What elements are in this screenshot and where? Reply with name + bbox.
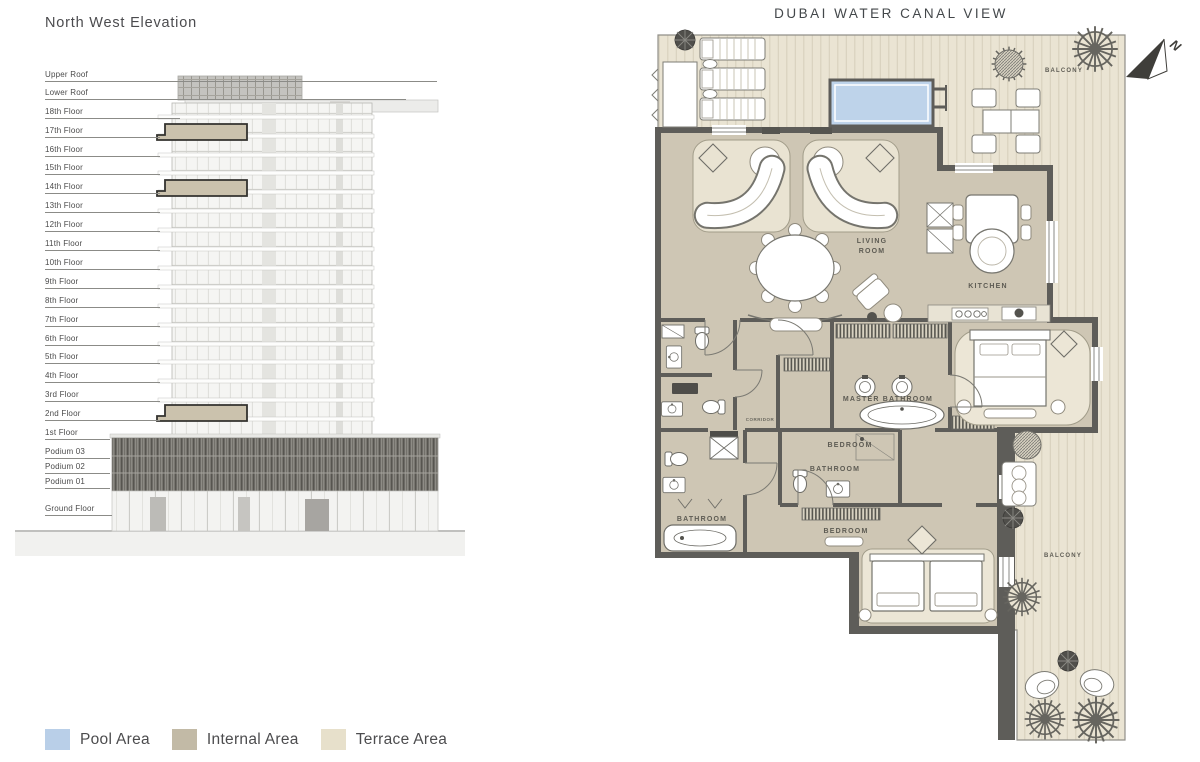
sun-lounger — [700, 98, 765, 120]
legend-item-internal-area: Internal Area — [172, 729, 299, 750]
floor-label-8th-floor: 8th Floor — [45, 296, 160, 308]
floor-label-1st-floor: 1st Floor — [45, 428, 110, 440]
legend-swatch — [172, 729, 197, 750]
pillow — [1012, 344, 1040, 355]
door-tag-2 — [810, 127, 832, 134]
side-table-dark — [867, 312, 877, 322]
toilet — [703, 400, 726, 414]
room-label-master-bathroom: MASTER BATHROOM — [843, 396, 933, 403]
sink — [666, 346, 681, 368]
door-tag-1 — [762, 127, 780, 134]
faucet — [1015, 309, 1024, 318]
ground-texture — [15, 532, 465, 556]
plant-icon — [1003, 578, 1041, 616]
shaft-box — [672, 383, 698, 394]
ground-entrance — [305, 499, 329, 531]
floor-label-11th-floor: 11th Floor — [45, 239, 160, 251]
floor-label-15th-floor: 15th Floor — [45, 163, 160, 175]
floor-label-6th-floor: 6th Floor — [45, 334, 160, 346]
floor-label-5th-floor: 5th Floor — [45, 352, 160, 364]
room-label-bathroom-middle: BATHROOM — [810, 466, 860, 473]
legend-label: Pool Area — [80, 731, 150, 749]
room-label-balcony-right: BALCONY — [1044, 553, 1082, 559]
floor-label-ground-floor: Ground Floor — [45, 504, 112, 516]
legend-item-pool-area: Pool Area — [45, 729, 150, 750]
floor-label-13th-floor: 13th Floor — [45, 201, 160, 213]
basin — [892, 377, 912, 397]
room-label-living-2: ROOM — [859, 248, 886, 255]
plant-icon — [1025, 699, 1066, 740]
north-arrow: N — [1126, 37, 1184, 79]
pillow — [935, 593, 977, 606]
legend-label: Internal Area — [207, 731, 299, 749]
room-label-kitchen: KITCHEN — [968, 283, 1008, 290]
round-planter — [995, 50, 1023, 78]
pillow — [980, 344, 1008, 355]
toilet — [793, 470, 807, 493]
headboard — [870, 554, 984, 561]
floor-label-17th-floor: 17th Floor — [45, 126, 160, 138]
floor-label-16th-floor: 16th Floor — [45, 145, 160, 157]
pool — [830, 80, 947, 126]
room-label-bedroom-lower: BEDROOM — [824, 528, 869, 535]
ground-door-1 — [150, 497, 166, 531]
floor-label-18th-floor: 18th Floor — [45, 107, 180, 119]
north-label: N — [1167, 37, 1184, 55]
floorplan-drawing: LIVING ROOM KITCHEN MASTER BATHROOM BEDR… — [650, 25, 1190, 745]
legend-swatch — [321, 729, 346, 750]
sun-lounger — [700, 68, 765, 90]
basin — [855, 377, 875, 397]
bathtub — [860, 401, 944, 429]
room-label-balcony-top: BALCONY — [1045, 68, 1083, 74]
side-table — [703, 60, 717, 69]
sun-lounger — [700, 38, 765, 60]
plant-icon — [1072, 26, 1118, 72]
floorplan-title: DUBAI WATER CANAL VIEW — [650, 6, 1132, 21]
dining-table — [750, 224, 841, 313]
floor-label-upper-roof: Upper Roof — [45, 70, 437, 82]
headboard — [970, 330, 1050, 340]
room-label-bathroom-corner: BATHROOM — [677, 516, 727, 523]
sink — [662, 402, 683, 416]
room-label-bedroom-upper: BEDROOM — [828, 442, 873, 449]
floor-label-podium-03: Podium 03 — [45, 447, 110, 459]
plant-icon — [1073, 697, 1120, 744]
stove — [952, 308, 988, 320]
island-table — [970, 229, 1014, 273]
floor-label-9th-floor: 9th Floor — [45, 277, 160, 289]
unit-highlight-2nd — [157, 405, 247, 421]
nightstand — [985, 609, 997, 621]
floor-label-2nd-floor: 2nd Floor — [45, 409, 160, 421]
unit-highlight-17th — [157, 124, 247, 140]
bathtub — [664, 525, 736, 551]
page: North West Elevation — [0, 0, 1200, 762]
sink — [663, 477, 685, 492]
nightstand — [1051, 400, 1065, 414]
unit-highlight-14th — [157, 180, 247, 196]
legend-item-terrace-area: Terrace Area — [321, 729, 447, 750]
round-planter — [1013, 431, 1041, 459]
sink — [826, 481, 849, 497]
legend: Pool AreaInternal AreaTerrace Area — [45, 729, 447, 750]
toilet — [665, 452, 688, 466]
floor-label-4th-floor: 4th Floor — [45, 371, 160, 383]
floor-label-podium-01: Podium 01 — [45, 477, 110, 489]
floor-label-12th-floor: 12th Floor — [45, 220, 160, 232]
master-bedroom — [955, 330, 1090, 425]
podium-slab — [110, 434, 440, 438]
legend-swatch — [45, 729, 70, 750]
room-label-corridor: CORRIDOR — [746, 417, 775, 422]
legend-label: Terrace Area — [356, 731, 447, 749]
podium — [112, 438, 438, 491]
floor-label-lower-roof: Lower Roof — [45, 88, 406, 100]
ottoman — [884, 304, 902, 322]
floor-label-10th-floor: 10th Floor — [45, 258, 160, 270]
plant-icon — [674, 29, 696, 51]
planter-box — [663, 62, 697, 127]
louver-marks — [652, 69, 658, 121]
side-table — [703, 90, 717, 99]
floor-label-3rd-floor: 3rd Floor — [45, 390, 160, 402]
pillow — [877, 593, 919, 606]
floor-label-podium-02: Podium 02 — [45, 462, 110, 474]
laundry-tag — [710, 431, 738, 437]
console — [825, 537, 863, 546]
toilet — [695, 327, 709, 350]
plant-icon — [1057, 650, 1079, 672]
floor-label-14th-floor: 14th Floor — [45, 182, 160, 194]
plant-icon — [1002, 507, 1024, 529]
nightstand — [859, 609, 871, 621]
room-label-living-1: LIVING — [857, 238, 888, 245]
bed-bench — [984, 409, 1036, 418]
ground-door-2 — [238, 497, 250, 531]
floor-label-7th-floor: 7th Floor — [45, 315, 160, 327]
